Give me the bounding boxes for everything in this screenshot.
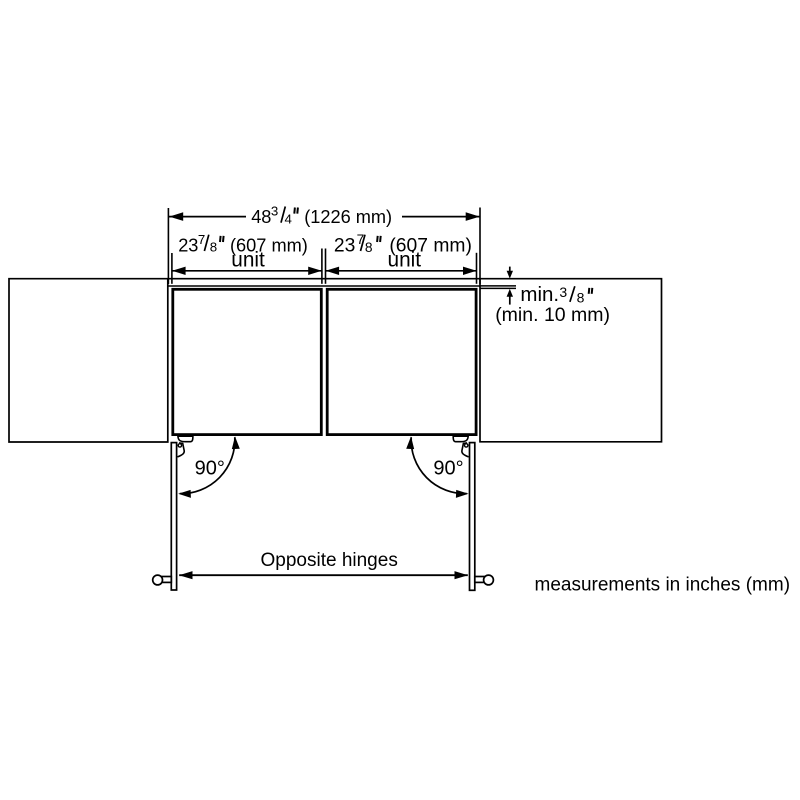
svg-text:unit: unit <box>231 249 265 272</box>
svg-text:23: 23 <box>178 235 198 255</box>
svg-text:8: 8 <box>365 240 373 255</box>
svg-text:unit: unit <box>388 249 422 272</box>
svg-text:(1226 mm): (1226 mm) <box>304 207 392 227</box>
svg-text:min.: min. <box>520 283 559 306</box>
svg-text:48: 48 <box>251 207 271 227</box>
svg-text:90°: 90° <box>433 457 463 479</box>
svg-text:3: 3 <box>559 284 567 300</box>
svg-text:7: 7 <box>198 232 205 247</box>
svg-text:Opposite hinges: Opposite hinges <box>261 550 398 571</box>
svg-text:90°: 90° <box>195 457 225 479</box>
svg-text:(min. 10 mm): (min. 10 mm) <box>495 304 610 326</box>
svg-text:8: 8 <box>210 240 217 255</box>
svg-text:23: 23 <box>334 235 355 256</box>
svg-text:measurements in inches (mm): measurements in inches (mm) <box>535 574 791 595</box>
svg-text:3: 3 <box>271 204 278 219</box>
svg-text:4: 4 <box>285 211 292 226</box>
